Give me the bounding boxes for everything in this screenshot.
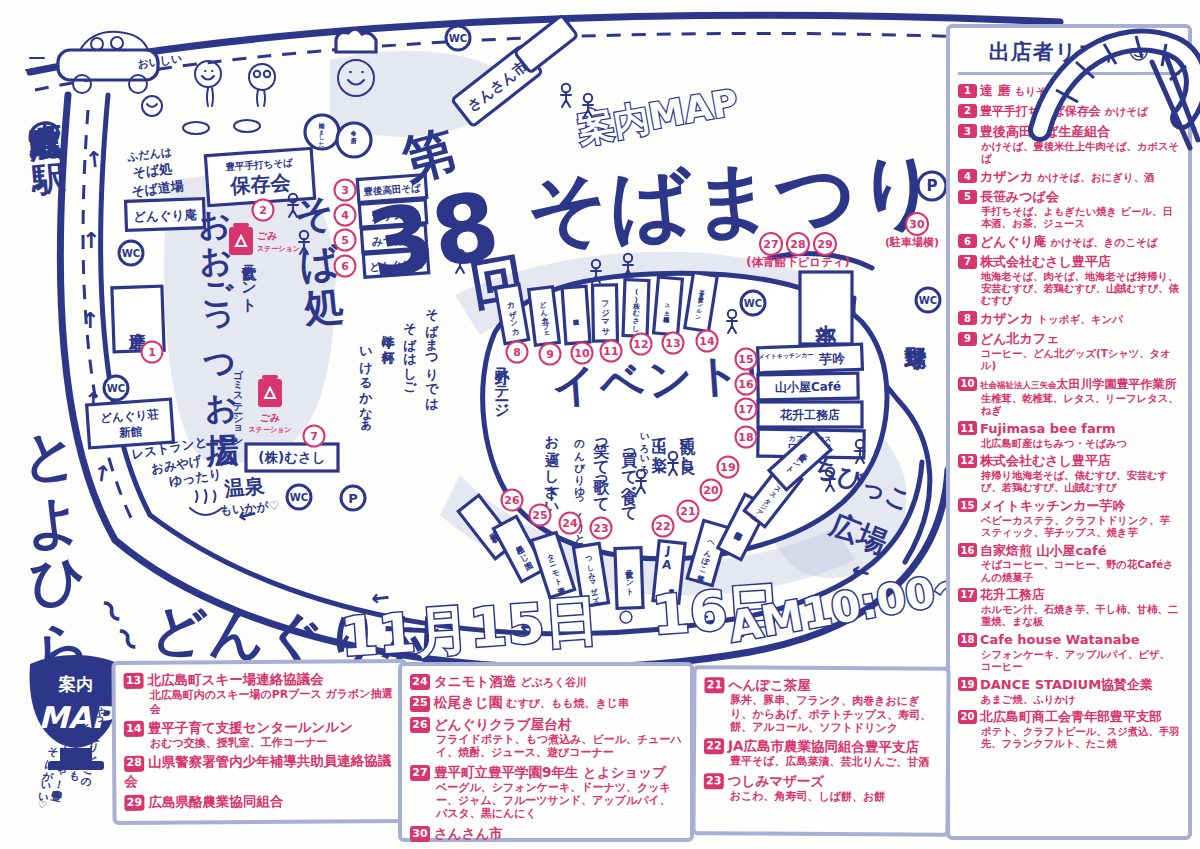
map-marker-7: 7 [304, 426, 325, 447]
map-marker-17: 17 [736, 399, 757, 420]
vendor-name: 山県警察署管内少年補導共助員連絡協議会 [124, 752, 391, 788]
smiley-icon: ☺ [1128, 40, 1149, 64]
vendor-name-prefix: 社会福祉法人三矢会 [980, 380, 1057, 390]
vendor-name: タニモト酒造 [434, 673, 516, 689]
map-marker-15: 15 [736, 349, 757, 370]
wc-icon: WC [741, 291, 765, 315]
map-marker-12: 12 [631, 334, 652, 355]
vendor-name: 豊平手打ちそば保存会 [980, 104, 1101, 118]
vendor-name: 北広島町商工会青年部豊平支部 [980, 709, 1162, 724]
svg-text:お過ごし下さい: お過ごし下さい [544, 426, 560, 513]
vendor-item: 5長笹みつば会手打ちそば、よもぎたい焼き ビール、日本酒、お茶、ジュース [958, 187, 1180, 229]
vendor-name: 北広島町スキー場連絡協議会 [148, 671, 324, 688]
map-marker-28: 28 [787, 233, 809, 255]
stall-15: メイトキッチンカー 芋吟 [758, 344, 863, 373]
vendor-menu: フライドポテト、もつ煮込み、ビール、チューハイ、焼酎、ジュース、遊びコーナー [410, 733, 682, 759]
vendor-item: 19DANCE STADIUM協賛企業あまご焼、ふりかけ [958, 675, 1180, 705]
svg-text:18: 18 [738, 431, 753, 444]
small-sign [514, 15, 577, 72]
svg-text:ごみ: ごみ [260, 412, 280, 423]
vendor-menu: そばコーヒー、コーヒー、野の花Caféさんの焼菓子 [958, 558, 1180, 582]
list-item: 21へんぽこ茶屋豚丼、豚串、フランク、肉巻きおにぎり、からあげ、ポテトチップス、… [704, 675, 938, 735]
item-number-badge: 6 [958, 234, 977, 248]
item-number-badge: 10 [958, 377, 977, 391]
parking-icon: P [918, 172, 946, 200]
map-marker-27: 27 [760, 233, 782, 255]
svg-text:19: 19 [720, 461, 735, 474]
map-marker-14: 14 [697, 331, 718, 352]
vendor-list-items: 1達 磨もりそば 2豊平手打ちそば保存会かけそば 3豊後高田そば生産組合かけそば… [958, 81, 1180, 749]
vendor-menu: おこわ、角寿司、しば餅、お餅 [704, 789, 938, 804]
svg-text:WC: WC [290, 492, 308, 503]
item-number-badge: 12 [958, 454, 977, 468]
wc-icon: WC [119, 241, 143, 265]
list-item: 28山県警察署管内少年補導共助員連絡協議会 [124, 751, 396, 790]
parking-note: (駐車場横) [885, 236, 939, 249]
vendor-menu: あまご焼、ふりかけ [958, 693, 1180, 705]
item-number-badge: 23 [704, 773, 724, 789]
map-marker-25: 25 [530, 505, 551, 526]
honbu-building: 本部 [800, 272, 852, 348]
svg-text:4: 4 [341, 209, 349, 222]
vendor-name: 太田川学園豊平作業所 [1057, 377, 1177, 391]
vendor-name: DANCE STADIUM協賛企業 [980, 677, 1153, 692]
map-title-annai: 案内MAP [574, 81, 741, 150]
visitor-speech: そばまつりでは そばはしご 今年は何杯 いけるかなぁ [358, 300, 439, 431]
vendor-item: 9どん北カフェコーヒー、どん北グッズ(Tシャツ、タオル) [958, 329, 1180, 371]
map-marker-23: 23 [591, 518, 612, 539]
vendor-name: Cafe house Watanabe [980, 632, 1140, 647]
vendor-name: カザンカ [980, 169, 1033, 184]
baseball-field-label: 野球場 [904, 347, 928, 371]
vendor-item: 2豊平手打ちそば保存会かけそば [958, 101, 1180, 119]
food-tent-label: 飲食テント [240, 254, 258, 313]
vendor-menu: 手打ちそば、よもぎたい焼き ビール、日本酒、お茶、ジュース [958, 205, 1180, 229]
svg-text:笑って歌って: 笑って歌って [593, 430, 612, 512]
map-marker-1: 1 [142, 342, 163, 363]
map-marker-3: 3 [335, 180, 356, 201]
svg-text:山小屋Café: 山小屋Café [775, 379, 841, 394]
vendor-name: 達 磨 [980, 83, 1011, 98]
svg-text:新館: 新館 [118, 424, 143, 440]
item-number-badge: 4 [958, 169, 977, 183]
svg-text:どんぐり庵: どんぐり庵 [133, 207, 198, 224]
svg-text:いろいろ: いろいろ [639, 426, 650, 475]
svg-text:2: 2 [259, 204, 267, 217]
svg-text:いけるかなぁ: いけるかなぁ [358, 338, 373, 431]
map-marker-22: 22 [653, 516, 674, 537]
svg-text:10: 10 [574, 347, 590, 360]
svg-text:22: 22 [655, 520, 670, 533]
vendor-menu: 北広島町産はちみつ・そばみつ [958, 437, 1180, 449]
vendor-menu: ベーグル、シフォンケーキ、ドーナツ、クッキー、ジャム、フルーツサンド、アップルパ… [410, 781, 682, 821]
svg-text:WC: WC [919, 295, 937, 306]
item-number-badge: 22 [704, 738, 724, 754]
svg-text:ステーション: ステーション [257, 245, 300, 253]
bottom-list-right: 21へんぽこ茶屋豚丼、豚串、フランク、肉巻きおにぎり、からあげ、ポテトチップス、… [691, 665, 950, 837]
svg-text:26: 26 [504, 494, 520, 507]
vendor-item: 8カザンカトッポギ、キンパ [958, 309, 1180, 327]
bottom-list-left: 13北広島町スキー場連絡協議会北広島町内のスキー場のPRブース ガラポン抽選会 … [111, 659, 408, 825]
vendor-menu: シフォンケーキ、アップルパイ、ピザ、コーヒー [958, 648, 1180, 672]
vendor-item: 18Cafe house Watanabeシフォンケーキ、アップルパイ、ピザ、コ… [958, 630, 1180, 672]
map-marker-30: 30 [906, 213, 928, 235]
vendor-menu: トッポギ、キンパ [1037, 313, 1123, 325]
vendor-name: 豊後高田そば生産組合 [980, 124, 1111, 139]
wc-icon: WC [104, 376, 128, 400]
list-item: 14豊平子育て支援センタールンルンおむつ交換、授乳室、工作コーナー [124, 717, 396, 750]
vendor-item: 10社会福祉法人三矢会太田川学園豊平作業所生椎茸、乾椎茸、レタス、リーフレタス、… [958, 374, 1180, 416]
svg-text:17: 17 [738, 403, 753, 416]
gym-note: (体育館下ピロティ) [746, 255, 850, 269]
svg-text:14: 14 [699, 335, 715, 348]
map-marker-29: 29 [814, 233, 836, 255]
item-number-badge: 14 [124, 721, 144, 737]
vendor-item: 1達 磨もりそば [958, 81, 1180, 99]
vendor-menu: 豚丼、豚串、フランク、肉巻きおにぎり、からあげ、ポテトチップス、寿司、餅、アルコ… [704, 694, 938, 735]
vendor-name: Fujimasa bee farm [980, 421, 1116, 436]
vendor-menu: 北広島町内のスキー場のPRブース ガラポン抽選会 [124, 687, 396, 715]
wc-icon: WC [446, 26, 470, 50]
vendor-menu: コーヒー、どん北グッズ(Tシャツ、タオル) [958, 347, 1180, 371]
svg-text:ごみ: ごみ [257, 230, 277, 241]
item-number-badge: 29 [124, 795, 144, 811]
stall-16: 山小屋Café [758, 373, 858, 400]
svg-text:8: 8 [513, 346, 521, 359]
svg-text:(株)むさし: (株)むさし [258, 449, 325, 465]
musashi-building: (株)むさし [246, 444, 338, 471]
vendor-name: 株式会社むさし豊平店 [980, 453, 1111, 468]
item-number-badge: 30 [410, 826, 430, 842]
svg-text:そばはしご: そばはしご [402, 314, 417, 393]
svg-text:21: 21 [680, 505, 695, 518]
svg-text:芋吟: 芋吟 [818, 351, 847, 367]
vendor-menu: おむつ交換、授乳室、工作コーナー [124, 735, 396, 750]
wc-icon: WC [916, 288, 940, 312]
svg-text:今年は何杯: 今年は何杯 [380, 326, 396, 365]
vendor-menu: どぶろく谷川 [520, 676, 587, 689]
map-marker-9: 9 [540, 344, 561, 365]
vendor-item: 3豊後高田そば生産組合かけそば、豊後米仕上牛肉そば、カボスそば [958, 122, 1180, 164]
svg-text:WC: WC [122, 248, 140, 259]
vendor-name: JA広島市農業協同組合豊平支店 [728, 737, 919, 754]
svg-text:13: 13 [665, 337, 680, 350]
stall-17: 花升工務店 [758, 402, 862, 427]
onsen-label: ゆったり 温泉 もいかが♡ [168, 466, 280, 518]
svg-text:温泉: 温泉 [222, 473, 265, 500]
list-item: 26どんぐりクラブ屋台村フライドポテト、もつ煮込み、ビール、チューハイ、焼酎、ジ… [410, 715, 682, 760]
svg-text:↑: ↑ [84, 146, 105, 173]
title-sobamatsuri: そばまつり [524, 142, 943, 257]
svg-text:P: P [927, 177, 938, 195]
vendor-name: 広島県酪農業協同組合 [148, 793, 283, 810]
list-item: 23つしみマザーズおこわ、角寿司、しば餅、お餅 [704, 771, 938, 804]
svg-text:15: 15 [738, 353, 753, 366]
svg-text:6: 6 [341, 260, 349, 273]
svg-text:27: 27 [763, 238, 778, 251]
item-number-badge: 18 [958, 633, 977, 647]
svg-text:20: 20 [703, 484, 719, 497]
svg-text:↑: ↑ [81, 308, 99, 333]
stage-label: 野外ステージ [493, 358, 511, 417]
svg-text:そば処: そば処 [132, 161, 173, 181]
vendor-menu: ポテト、クラフトビール、スジ煮込、手羽先、フランクフルト、たこ焼 [958, 725, 1180, 749]
svg-text:25: 25 [532, 509, 547, 522]
item-number-badge: 9 [958, 332, 977, 346]
map-marker-10: 10 [572, 343, 593, 364]
item-number-badge: 15 [958, 498, 977, 512]
list-item: 25松尾きじ園むすび、もも焼、きじ串 [410, 693, 682, 711]
vendor-name: 豊平町立豊平学園9年生 とよショップ [434, 764, 666, 780]
item-number-badge: 27 [410, 765, 430, 781]
item-number-badge: 7 [958, 255, 977, 269]
item-number-badge: 5 [958, 190, 977, 204]
bottom-list-center: 24タニモト酒造どぶろく谷川 25松尾きじ園むすび、もも焼、きじ串 26どんぐり… [398, 662, 694, 842]
item-number-badge: 17 [958, 588, 977, 602]
onsen-icon [190, 490, 222, 515]
map-marker-16: 16 [736, 374, 757, 395]
festival-map-page: ↑ ↑ ↑ ↑ ↑ ← ← ← ← ← ← おいしい [0, 0, 1200, 849]
vendor-menu: 地海老そば、肉そば、地海老そば持帰り、安芸むすび、若鶏むすび、山賊むすび、俵むす… [958, 270, 1180, 306]
vendor-list-header: 出店者リスト ☺ [958, 34, 1180, 75]
item-number-badge: 16 [958, 543, 977, 557]
svg-text:9: 9 [546, 348, 554, 361]
svg-text:↑: ↑ [82, 228, 100, 253]
vendor-list-title: 出店者リスト [989, 38, 1122, 66]
map-marker-24: 24 [560, 513, 581, 534]
vendor-name: カザンカ [980, 311, 1033, 326]
svg-text:11: 11 [603, 345, 618, 358]
vendor-menu: ベビーカステラ、クラフトドリンク、芋スティック、芋チップス、焼き芋 [958, 514, 1180, 538]
svg-text:30: 30 [909, 218, 925, 231]
vendor-name: 花升工務店 [980, 587, 1045, 602]
svg-text:7: 7 [310, 430, 318, 443]
map-marker-11: 11 [601, 341, 622, 362]
vendor-name: どんぐり庵 [980, 234, 1046, 249]
svg-text:5: 5 [341, 234, 349, 247]
svg-text:↑: ↑ [91, 460, 113, 487]
item-number-badge: 24 [410, 674, 430, 690]
list-item: 29広島県酪農業協同組合 [124, 791, 396, 811]
vendor-menu: 豊平そば、広島菜漬、芸北りんご、甘酒 [704, 755, 938, 770]
vendor-menu: ホルモン汁、石焼き芋、干し柿、甘柿、二重焼、まな板 [958, 603, 1180, 627]
item-number-badge: 26 [410, 717, 430, 733]
svg-text:もいかが♡: もいかが♡ [219, 498, 280, 517]
vendor-name: どん北カフェ [980, 331, 1060, 346]
item-number-badge: 20 [958, 710, 977, 724]
item-number-badge: 11 [958, 421, 977, 435]
item-number-badge: 3 [958, 124, 977, 138]
map-marker-19: 19 [718, 457, 739, 478]
map-marker-6: 6 [335, 256, 356, 277]
item-number-badge: 13 [124, 673, 144, 689]
gomi-station-blue-label: ゴミステーション [232, 362, 244, 445]
svg-text:WC: WC [449, 33, 467, 44]
fudan-note: ふだんは そば処 そば道場 [125, 145, 184, 199]
map-marker-4: 4 [335, 205, 356, 226]
item-number-badge: 19 [958, 677, 977, 691]
list-item: 24タニモト酒造どぶろく谷川 [410, 672, 682, 690]
vendor-menu: かけそば [1105, 105, 1148, 117]
vendor-name: 長笹みつば会 [980, 189, 1059, 204]
svg-text:16: 16 [738, 378, 754, 391]
svg-text:WC: WC [107, 383, 125, 394]
donguri-an-building: どんぐり庵 [126, 199, 205, 231]
map-marker-20: 20 [701, 480, 722, 501]
item-number-badge: 2 [958, 104, 977, 118]
map-marker-5: 5 [335, 230, 356, 251]
svg-text:保存会: 保存会 [229, 170, 293, 198]
vendor-menu: かけそば、おにぎり、酒 [1037, 171, 1154, 183]
svg-text:24: 24 [562, 517, 578, 530]
svg-text:そばまつりでは: そばまつりでは [424, 300, 439, 411]
squiggle: 〜 [107, 620, 146, 659]
map-marker-2: 2 [253, 200, 274, 221]
map-marker-8: 8 [507, 342, 528, 363]
map-marker-21: 21 [678, 501, 699, 522]
item-number-badge: 21 [704, 678, 724, 694]
svg-text:29: 29 [817, 238, 832, 251]
svg-text:1: 1 [148, 346, 156, 359]
vendor-name: 自家焙煎 山小屋café [980, 543, 1106, 558]
vendor-name: つしみマザーズ [728, 772, 825, 789]
vendor-name: 松尾きじ園 [434, 694, 502, 710]
vendor-menu: かけそば、きのこそば [1050, 236, 1157, 248]
list-item: 13北広島町スキー場連絡協議会北広島町内のスキー場のPRブース ガラポン抽選会 [124, 669, 396, 716]
svg-text:P: P [348, 491, 358, 506]
map-marker-13: 13 [663, 333, 684, 354]
svg-text:28: 28 [790, 238, 805, 251]
list-item: 30さんさん市 [410, 824, 682, 842]
svg-text:12: 12 [633, 338, 648, 351]
svg-text:3: 3 [341, 184, 349, 197]
svg-text:JA: JA [659, 543, 676, 572]
vendor-item: 16自家焙煎 山小屋caféそばコーヒー、コーヒー、野の花Caféさんの焼菓子 [958, 541, 1180, 583]
vendor-item: 4カザンカかけそば、おにぎり、酒 [958, 167, 1180, 185]
vendor-item: 15メイトキッチンカー芋吟ベビーカステラ、クラフトドリンク、芋スティック、芋チッ… [958, 496, 1180, 538]
vendor-name: 豊平子育て支援センタールンルン [148, 718, 353, 735]
vendor-list-panel: 出店者リスト ☺ 1達 磨もりそば 2豊平手打ちそば保存会かけそば 3豊後高田そ… [946, 24, 1192, 840]
vendor-item: 12株式会社むさし豊平店持帰り地海老そば、俵むすび、安芸むすび、若鶏むすび、山賊… [958, 451, 1180, 493]
vendor-menu: 持帰り地海老そば、俵むすび、安芸むすび、若鶏むすび、山賊むすび [958, 469, 1180, 493]
list-item: 22JA広島市農業協同組合豊平支店豊平そば、広島菜漬、芸北りんご、甘酒 [704, 736, 938, 769]
vendor-name: メイトキッチンカー芋吟 [980, 498, 1125, 513]
vendor-item: 6どんぐり庵かけそば、きのこそば [958, 232, 1180, 250]
vendor-item: 11Fujimasa bee farm北広島町産はちみつ・そばみつ [958, 419, 1180, 449]
vendor-name: さんさん市 [434, 825, 503, 841]
vendor-menu: もりそば [1015, 85, 1058, 97]
station-name-toyohira: とよひら [14, 394, 97, 678]
parking-icon: P [341, 486, 365, 510]
vendor-menu: 生椎茸、乾椎茸、レタス、リーフレタス、ねぎ [958, 392, 1180, 416]
vendor-menu: かけそば、豊後米仕上牛肉そば、カボスそば [958, 140, 1180, 164]
item-number-badge: 8 [958, 311, 977, 325]
family-eating-illustration [142, 61, 275, 134]
item-number-badge: 25 [410, 696, 430, 712]
map-marker-26: 26 [502, 490, 523, 511]
vendor-name: どんぐりクラブ屋台村 [434, 716, 571, 732]
vendor-name: へんぽこ茶屋 [728, 676, 810, 693]
svg-text:23: 23 [593, 522, 608, 535]
vendor-menu: むすび、もも焼、きじ串 [506, 697, 629, 710]
vendor-item: 17花升工務店ホルモン汁、石焼き芋、干し柿、甘柿、二重焼、まな板 [958, 585, 1180, 627]
vendor-item: 7株式会社むさし豊平店地海老そば、肉そば、地海老そば持帰り、安芸むすび、若鶏むす… [958, 252, 1180, 306]
item-number-badge: 1 [958, 84, 977, 98]
svg-text:案内: 案内 [58, 674, 93, 694]
item-number-badge: 28 [124, 755, 144, 771]
svg-text:ステーション: ステーション [249, 426, 292, 434]
wc-icon: WC [287, 485, 311, 509]
vendor-item: 20北広島町商工会青年部豊平支部ポテト、クラフトビール、スジ煮込、手羽先、フラン… [958, 707, 1180, 749]
svg-text:WC: WC [744, 298, 762, 309]
vendor-name: 株式会社むさし豊平店 [980, 254, 1111, 269]
list-item: 27豊平町立豊平学園9年生 とよショップベーグル、シフォンケーキ、ドーナツ、クッ… [410, 763, 682, 821]
svg-text:花升工務店: 花升工務店 [779, 408, 840, 422]
map-marker-18: 18 [736, 427, 757, 448]
